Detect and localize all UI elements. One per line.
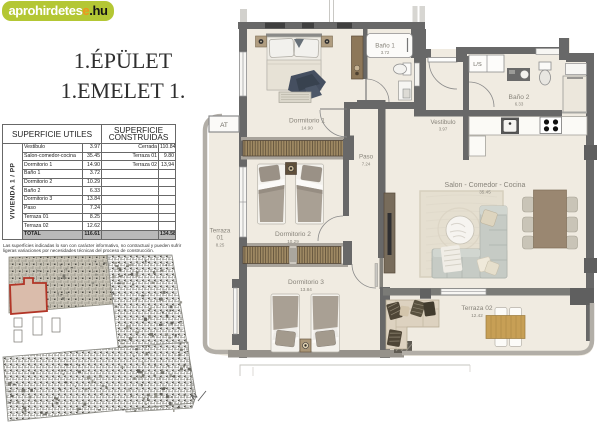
svg-text:13.84: 13.84 bbox=[300, 287, 312, 292]
svg-text:Terraza 02: Terraza 02 bbox=[461, 305, 492, 312]
svg-text:Baño 1: Baño 1 bbox=[375, 43, 395, 50]
svg-text:10.29: 10.29 bbox=[287, 239, 299, 244]
svg-text:14.90: 14.90 bbox=[301, 126, 313, 131]
svg-text:3.97: 3.97 bbox=[439, 127, 448, 132]
svg-text:Paso: Paso bbox=[359, 154, 374, 161]
svg-text:Salon - Comedor - Cocina: Salon - Comedor - Cocina bbox=[445, 182, 526, 189]
svg-text:6.33: 6.33 bbox=[515, 102, 524, 107]
svg-text:Dormitorio 1: Dormitorio 1 bbox=[289, 118, 325, 125]
svg-text:7.24: 7.24 bbox=[362, 162, 371, 167]
svg-text:Terraza: Terraza bbox=[210, 228, 231, 235]
svg-text:AT: AT bbox=[220, 122, 228, 129]
svg-text:Dormitorio 2: Dormitorio 2 bbox=[275, 231, 311, 238]
svg-text:12.42: 12.42 bbox=[471, 313, 483, 318]
svg-text:Baño 2: Baño 2 bbox=[509, 94, 530, 101]
svg-text:8.25: 8.25 bbox=[216, 243, 225, 248]
svg-text:L/S: L/S bbox=[473, 62, 482, 68]
svg-text:Vestibulo: Vestibulo bbox=[430, 119, 456, 126]
svg-text:Dormitorio 3: Dormitorio 3 bbox=[288, 279, 324, 286]
svg-text:35.45: 35.45 bbox=[479, 190, 491, 195]
svg-text:01: 01 bbox=[217, 235, 224, 242]
svg-text:3.72: 3.72 bbox=[381, 50, 390, 55]
